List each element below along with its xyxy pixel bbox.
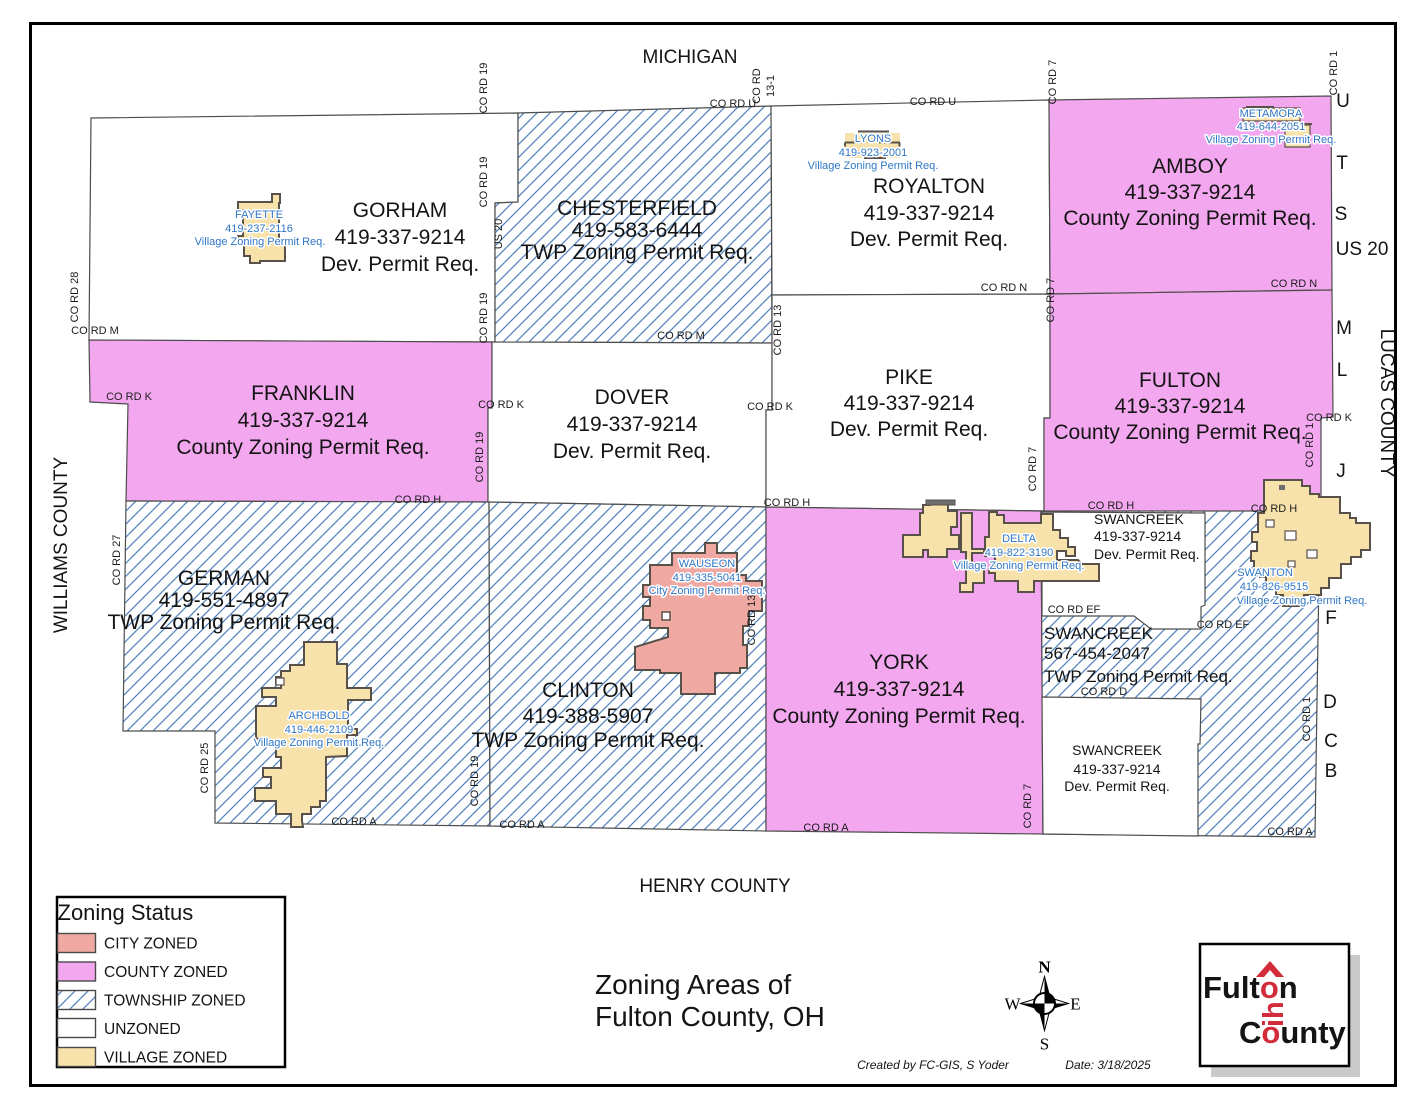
svg-text:CO RD 1: CO RD 1 (1328, 51, 1340, 96)
svg-text:CHESTERFIELD: CHESTERFIELD (557, 197, 717, 220)
svg-text:County Zoning Permit Req.: County Zoning Permit Req. (1053, 421, 1306, 444)
svg-text:SWANCREEK: SWANCREEK (1072, 742, 1162, 758)
svg-text:Village Zoning Permit Req.: Village Zoning Permit Req. (1206, 134, 1337, 146)
svg-text:419-337-9214: 419-337-9214 (1094, 528, 1181, 544)
svg-text:CO RD EF: CO RD EF (1197, 619, 1250, 631)
svg-text:FRANKLIN: FRANKLIN (251, 382, 355, 405)
svg-text:Dev. Permit Req.: Dev. Permit Req. (850, 228, 1008, 251)
svg-text:CO RD A: CO RD A (803, 822, 849, 834)
svg-text:VILLAGE ZONED: VILLAGE ZONED (104, 1050, 227, 1067)
svg-text:TOWNSHIP ZONED: TOWNSHIP ZONED (104, 993, 246, 1010)
svg-text:CO RD M: CO RD M (657, 330, 705, 342)
svg-text:J: J (1336, 461, 1346, 482)
svg-text:CO RD: CO RD (751, 68, 763, 104)
svg-text:CO RD 13: CO RD 13 (772, 305, 784, 356)
svg-text:N: N (1038, 958, 1051, 977)
svg-text:419-388-5907: 419-388-5907 (523, 705, 654, 728)
svg-text:419-337-9214: 419-337-9214 (238, 409, 369, 432)
svg-text:M: M (1336, 318, 1352, 339)
svg-text:419-337-9214: 419-337-9214 (1115, 395, 1246, 418)
svg-text:LYONS: LYONS (855, 133, 891, 145)
svg-text:S: S (1335, 204, 1348, 225)
svg-text:GERMAN: GERMAN (178, 567, 270, 590)
svg-text:METAMORA: METAMORA (1240, 108, 1303, 120)
svg-text:CITY ZONED: CITY ZONED (104, 936, 198, 953)
svg-text:419-337-9214: 419-337-9214 (567, 413, 698, 436)
svg-text:FAYETTE: FAYETTE (235, 209, 283, 221)
svg-text:CO RD 19: CO RD 19 (478, 157, 490, 208)
svg-text:TWP Zoning Permit Req.: TWP Zoning Permit Req. (1044, 667, 1233, 686)
svg-text:F: F (1325, 608, 1337, 629)
svg-text:CO RD 19: CO RD 19 (478, 63, 490, 114)
svg-text:MICHIGAN: MICHIGAN (643, 47, 738, 68)
svg-text:S: S (1040, 1035, 1049, 1054)
svg-text:D: D (1323, 692, 1337, 713)
svg-text:L: L (1337, 360, 1348, 381)
svg-text:DOVER: DOVER (595, 386, 670, 409)
svg-text:CO RD H: CO RD H (764, 497, 811, 509)
svg-text:Fulton: Fulton (1203, 970, 1298, 1005)
svg-text:13-1: 13-1 (765, 75, 777, 97)
svg-text:419-583-6444: 419-583-6444 (572, 219, 703, 242)
svg-text:E: E (1070, 995, 1080, 1014)
svg-text:Village Zoning Permit Req.: Village Zoning Permit Req. (808, 160, 939, 172)
svg-text:WAUSEON: WAUSEON (679, 558, 735, 570)
svg-text:County Zoning Permit Req.: County Zoning Permit Req. (176, 436, 429, 459)
svg-text:LUCAS COUNTY: LUCAS COUNTY (1376, 329, 1397, 478)
svg-text:419-335-5041: 419-335-5041 (673, 572, 742, 584)
svg-text:ih: ih (1258, 1001, 1290, 1027)
svg-text:Date: 3/18/2025: Date: 3/18/2025 (1065, 1058, 1151, 1072)
svg-text:HENRY COUNTY: HENRY COUNTY (639, 876, 791, 897)
svg-text:CO RD 19: CO RD 19 (474, 432, 486, 483)
svg-text:CO RD H: CO RD H (395, 494, 442, 506)
svg-text:419-337-9214: 419-337-9214 (864, 202, 995, 225)
svg-text:DELTA: DELTA (1002, 533, 1036, 545)
svg-text:CO RD 1: CO RD 1 (1301, 697, 1313, 742)
svg-text:C: C (1324, 731, 1338, 752)
svg-text:County: County (1239, 1015, 1347, 1050)
svg-text:419-822-3190: 419-822-3190 (985, 547, 1054, 559)
svg-text:419-923-2001: 419-923-2001 (839, 147, 908, 159)
svg-text:Created by FC-GIS, S Yoder: Created by FC-GIS, S Yoder (857, 1058, 1010, 1072)
svg-text:GORHAM: GORHAM (353, 199, 448, 222)
svg-text:CO RD 7: CO RD 7 (1047, 60, 1059, 105)
svg-text:ROYALTON: ROYALTON (873, 175, 985, 198)
svg-text:567-454-2047: 567-454-2047 (1044, 644, 1150, 663)
svg-text:CLINTON: CLINTON (542, 679, 634, 702)
svg-text:U: U (1336, 91, 1350, 112)
svg-text:CO RD 28: CO RD 28 (69, 272, 81, 323)
svg-text:CO RD 7: CO RD 7 (1022, 784, 1034, 829)
svg-text:SWANTON: SWANTON (1237, 567, 1293, 579)
svg-text:COUNTY ZONED: COUNTY ZONED (104, 964, 228, 981)
svg-text:Village Zoning Permit Req.: Village Zoning Permit Req. (954, 560, 1085, 572)
svg-text:419-551-4897: 419-551-4897 (159, 589, 290, 612)
svg-text:FULTON: FULTON (1139, 369, 1221, 392)
svg-text:B: B (1325, 761, 1338, 782)
svg-text:CO RD EF: CO RD EF (1048, 604, 1101, 616)
svg-text:W: W (1004, 995, 1021, 1014)
svg-text:CO RD A: CO RD A (499, 819, 545, 831)
svg-text:CO RD N: CO RD N (1271, 278, 1318, 290)
svg-text:419-337-9214: 419-337-9214 (834, 678, 965, 701)
svg-text:419-337-9214: 419-337-9214 (335, 226, 466, 249)
svg-text:CO RD 7: CO RD 7 (1027, 447, 1039, 492)
svg-text:CO RD K: CO RD K (1306, 412, 1353, 424)
svg-text:Village Zoning Permit Req.: Village Zoning Permit Req. (1237, 595, 1368, 607)
svg-text:CO RD N: CO RD N (981, 282, 1028, 294)
svg-text:T: T (1336, 153, 1348, 174)
svg-text:TWP Zoning Permit Req.: TWP Zoning Permit Req. (520, 241, 753, 264)
svg-text:419-446-2109: 419-446-2109 (285, 724, 354, 736)
svg-text:CO RD K: CO RD K (106, 391, 153, 403)
svg-text:TWP Zoning Permit Req.: TWP Zoning Permit Req. (107, 611, 340, 634)
svg-text:CO RD U: CO RD U (710, 98, 757, 110)
svg-text:419-826-9515: 419-826-9515 (1240, 581, 1309, 593)
svg-text:CO RD K: CO RD K (478, 399, 525, 411)
svg-text:CO RD M: CO RD M (71, 325, 119, 337)
svg-text:Dev. Permit Req.: Dev. Permit Req. (321, 253, 479, 276)
svg-text:CO RD A: CO RD A (1267, 826, 1313, 838)
svg-text:Dev. Permit Req.: Dev. Permit Req. (1094, 546, 1200, 562)
svg-text:County Zoning Permit Req.: County Zoning Permit Req. (772, 705, 1025, 728)
svg-text:US 20: US 20 (1336, 239, 1389, 260)
svg-text:CO RD 25: CO RD 25 (199, 743, 211, 794)
svg-text:Dev. Permit Req.: Dev. Permit Req. (1064, 778, 1170, 794)
svg-text:CO RD H: CO RD H (1251, 503, 1298, 515)
svg-text:CO RD K: CO RD K (747, 401, 794, 413)
svg-text:ARCHBOLD: ARCHBOLD (288, 710, 349, 722)
svg-text:PIKE: PIKE (885, 366, 933, 389)
svg-text:AMBOY: AMBOY (1152, 155, 1228, 178)
svg-text:UNZONED: UNZONED (104, 1021, 181, 1038)
svg-text:US 20: US 20 (493, 219, 505, 250)
svg-text:CO RD A: CO RD A (331, 816, 377, 828)
svg-text:City Zoning Permit Req.: City Zoning Permit Req. (649, 585, 766, 597)
svg-text:419-337-9214: 419-337-9214 (1125, 181, 1256, 204)
svg-text:Dev. Permit Req.: Dev. Permit Req. (553, 440, 711, 463)
svg-text:419-337-9214: 419-337-9214 (844, 392, 975, 415)
svg-text:419-237-2116: 419-237-2116 (225, 223, 293, 235)
svg-text:TWP Zoning Permit Req.: TWP Zoning Permit Req. (471, 729, 704, 752)
svg-text:WILLIAMS COUNTY: WILLIAMS COUNTY (51, 457, 72, 634)
svg-text:SWANCREEK: SWANCREEK (1044, 624, 1154, 643)
svg-text:419-337-9214: 419-337-9214 (1073, 761, 1160, 777)
svg-text:Fulton County, OH: Fulton County, OH (595, 1001, 825, 1032)
svg-text:419-644-2051: 419-644-2051 (1237, 121, 1306, 133)
svg-text:SWANCREEK: SWANCREEK (1094, 511, 1184, 527)
svg-text:CO RD 7: CO RD 7 (1045, 278, 1057, 323)
svg-text:CO RD 27: CO RD 27 (111, 535, 123, 586)
svg-text:CO RD U: CO RD U (910, 96, 957, 108)
svg-text:CO RD 19: CO RD 19 (478, 293, 490, 344)
svg-text:CO RD 13: CO RD 13 (746, 595, 758, 646)
svg-text:Dev. Permit Req.: Dev. Permit Req. (830, 418, 988, 441)
svg-text:CO RD 19: CO RD 19 (469, 756, 481, 807)
svg-text:CO RD D: CO RD D (1081, 686, 1128, 698)
svg-text:Zoning Status: Zoning Status (58, 900, 194, 925)
svg-text:YORK: YORK (869, 651, 929, 674)
svg-text:County Zoning Permit Req.: County Zoning Permit Req. (1063, 207, 1316, 230)
svg-text:Village Zoning Permit Req.: Village Zoning Permit Req. (195, 236, 326, 248)
svg-text:Village Zoning Permit Req.: Village Zoning Permit Req. (254, 737, 385, 749)
svg-text:Zoning Areas of: Zoning Areas of (595, 969, 791, 1000)
